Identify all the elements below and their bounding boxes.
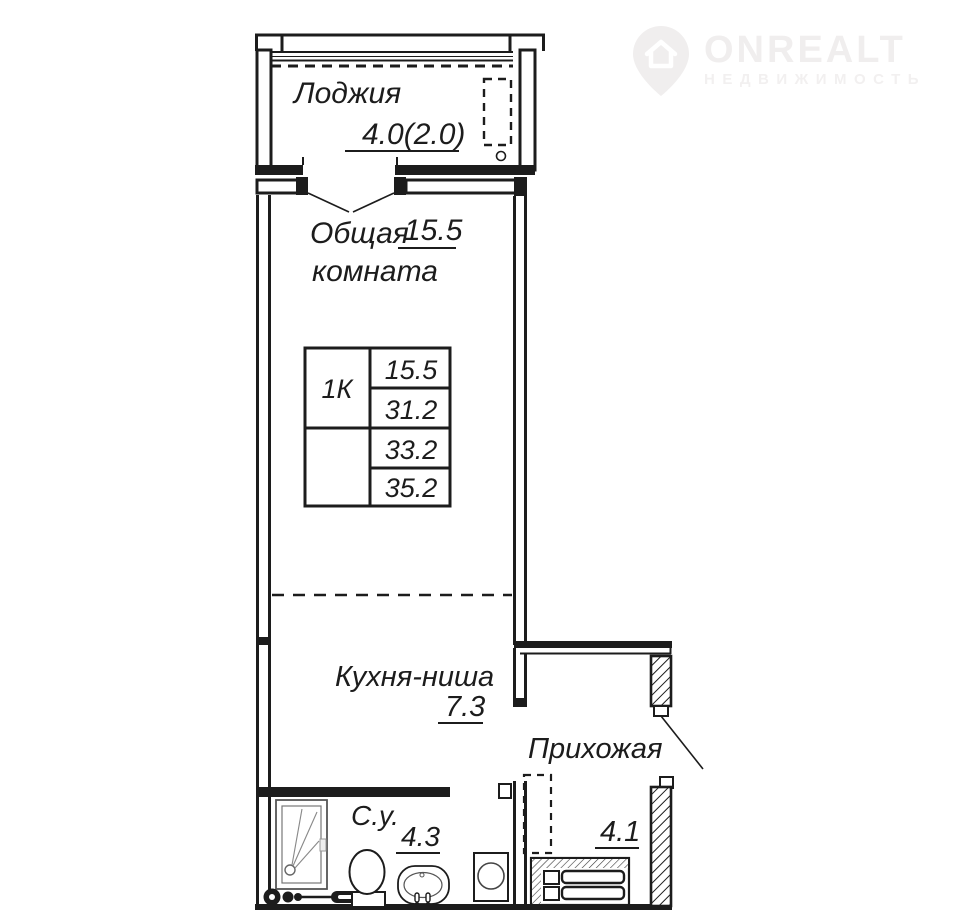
loggia-label: Лоджия [292, 77, 401, 110]
entrance-door-leaf [661, 716, 703, 769]
bathroom-area: 4.3 [401, 821, 440, 852]
table-row-total-area: 35.2 [385, 473, 438, 503]
loggia-dashed-duct [484, 79, 511, 161]
shower-cabin [276, 800, 327, 889]
bathroom-label: С.у. [351, 800, 399, 831]
wardrobe [531, 858, 629, 905]
table-row-area-2: 31.2 [385, 395, 438, 425]
living-room-label-line2: комната [312, 255, 438, 288]
loggia-area: 4.0(2.0) [362, 118, 465, 151]
table-row-living-area: 15.5 [385, 355, 439, 385]
toilet [350, 850, 386, 907]
sink [398, 866, 449, 906]
hallway-area: 4.1 [600, 816, 640, 848]
hallway-label: Прихожая [528, 733, 663, 765]
entrance-walls [651, 656, 703, 906]
balcony-door-swing [308, 193, 394, 212]
floor-plan-page: ONREALT НЕДВИЖИМОСТЬ [0, 0, 960, 910]
bathroom-door-dashed [524, 775, 551, 853]
walls [255, 195, 672, 910]
table-row-area-3: 33.2 [385, 435, 438, 465]
floor-plan-drawing: 1К 15.5 31.2 33.2 35.2 Лоджия 4.0(2.0) О… [0, 0, 960, 910]
washing-machine [474, 853, 508, 901]
kitchen-area: 7.3 [445, 691, 485, 723]
living-room-label-line1: Общая [310, 217, 409, 250]
living-room-area: 15.5 [404, 214, 463, 247]
table-apartment-type: 1К [322, 374, 355, 404]
kitchen-label: Кухня-ниша [335, 661, 494, 693]
